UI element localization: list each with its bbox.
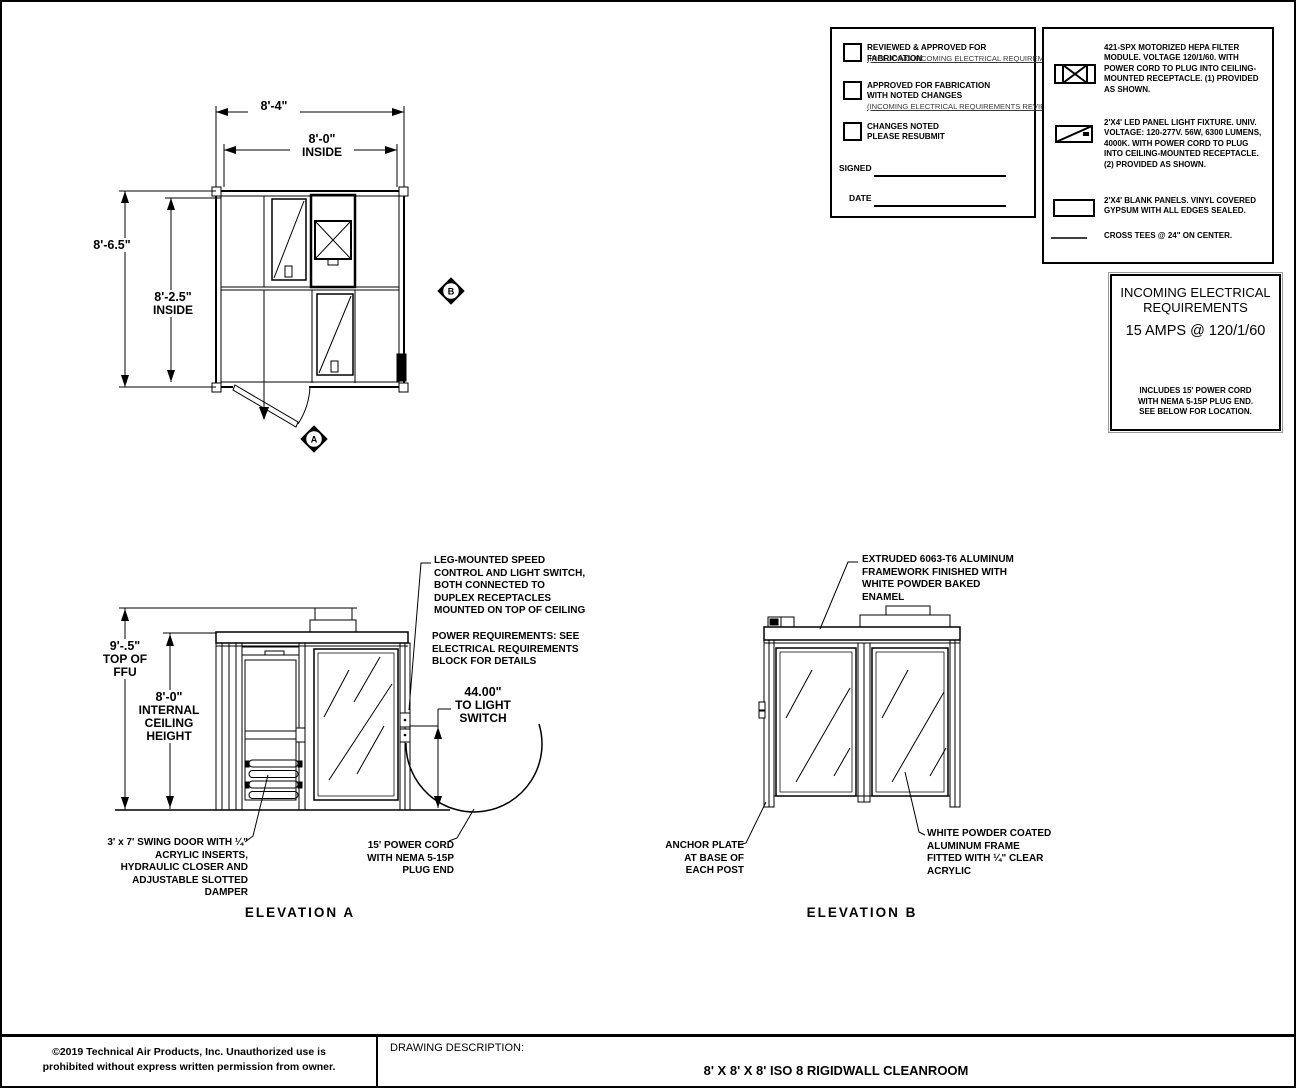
date-label: DATE	[849, 193, 872, 203]
legend-symbol-led-icon	[1055, 125, 1093, 143]
dim-value: 44.00"	[447, 685, 519, 699]
drawing-title: 8' X 8' X 8' ISO 8 RIGIDWALL CLEANROOM	[378, 1063, 1294, 1078]
annotation-power-requirements: POWER REQUIREMENTS: SEE ELECTRICAL REQUI…	[432, 631, 590, 669]
section-marker-a-label: A	[311, 435, 318, 445]
plan-dim-outer-depth	[119, 191, 216, 387]
approval-item-1-note: (INCLUDING INCOMING ELECTRICAL REQUIREME…	[867, 54, 1067, 63]
section-marker-a: A	[301, 426, 327, 452]
approval-item-2-note: (INCOMING ELECTRICAL REQUIREMENTS REVIEW…	[867, 102, 1065, 111]
legend-item-2-text: 2'X4' LED PANEL LIGHT FIXTURE. UNIV. VOL…	[1104, 118, 1264, 170]
plan-dim-inner-depth-text: 8'-2.5" INSIDE	[141, 290, 205, 317]
date-line	[874, 205, 1006, 207]
legend-symbol-hepa-icon	[1054, 64, 1096, 84]
leader-anchor-plate	[738, 802, 766, 845]
approval-item-3-line1: CHANGES NOTED	[867, 122, 1029, 133]
dim-value: 8'-0"	[290, 132, 354, 146]
electrical-requirements-block: INCOMING ELECTRICAL REQUIREMENTS 15 AMPS…	[1110, 274, 1281, 431]
dim-label: INSIDE	[290, 146, 354, 159]
plan-dim-outer-depth-text: 8'-6.5"	[86, 238, 138, 252]
leader-framework	[820, 562, 858, 629]
elevation-a-switch-boxes	[400, 713, 410, 742]
drawing-sheet: B A	[0, 0, 1296, 1088]
plan-led-panel-1	[272, 199, 306, 280]
dim-value: 9'-.5"	[96, 639, 154, 653]
elevation-b-acrylic-panels	[776, 648, 948, 796]
electrical-amps: 15 AMPS @ 120/1/60	[1112, 323, 1279, 339]
plan-hepa-module	[311, 195, 355, 287]
dim-label: INSIDE	[141, 304, 205, 317]
legend-item-3-text: 2'X4' BLANK PANELS. VINYL COVERED GYPSUM…	[1104, 196, 1264, 217]
annotation-acrylic-frame: WHITE POWDER COATED ALUMINUM FRAME FITTE…	[927, 828, 1055, 878]
elevation-b-title: ELEVATION B	[802, 905, 922, 920]
approval-checkbox-3	[843, 122, 862, 141]
signed-label: SIGNED	[839, 163, 872, 173]
leader-acrylic-frame	[905, 772, 925, 835]
dim-label: TOP OF FFU	[96, 653, 154, 679]
plan-led-panel-2	[317, 294, 353, 375]
approval-checkbox-1	[843, 43, 862, 62]
approval-item-2-line1: APPROVED FOR FABRICATION	[867, 81, 1029, 92]
elevation-a-power-cord	[406, 724, 542, 812]
approval-block: REVIEWED & APPROVED FOR FABRICATION (INC…	[830, 27, 1036, 218]
approval-item-2-line2: WITH NOTED CHANGES	[867, 91, 1029, 102]
elevation-a-title: ELEVATION A	[240, 905, 360, 920]
drawing-description-label: DRAWING DESCRIPTION:	[390, 1042, 524, 1054]
copyright-line-1: ©2019 Technical Air Products, Inc. Unaut…	[12, 1045, 366, 1060]
leader-power-cord	[449, 809, 474, 841]
copyright-line-2: prohibited without express written permi…	[12, 1060, 366, 1075]
plan-dim-inner-width-text: 8'-0" INSIDE	[290, 132, 354, 159]
annotation-framework: EXTRUDED 6063-T6 ALUMINUM FRAMEWORK FINI…	[862, 554, 1022, 604]
signed-line	[874, 175, 1006, 177]
leader-leg-mounted	[409, 563, 431, 710]
dim-label: TO LIGHT SWITCH	[447, 699, 519, 725]
title-block: ©2019 Technical Air Products, Inc. Unaut…	[2, 1034, 1296, 1088]
plan-dim-outer-width-text: 8'-4"	[248, 99, 300, 113]
approval-item-3-line2: PLEASE RESUBMIT	[867, 132, 1029, 143]
annotation-anchor-plate: ANCHOR PLATE AT BASE OF EACH POST	[656, 840, 744, 878]
elevation-a-dim-switch-text: 44.00" TO LIGHT SWITCH	[447, 685, 519, 725]
legend-symbol-blank-panel-icon	[1053, 199, 1095, 217]
electrical-title: INCOMING ELECTRICAL REQUIREMENTS	[1112, 285, 1279, 315]
legend-item-4-text: CROSS TEES @ 24" ON CENTER.	[1104, 231, 1264, 241]
elevation-b-view	[738, 562, 960, 845]
elevation-b-junction-box	[768, 617, 794, 627]
plan-power-cord-location	[397, 354, 406, 381]
elevation-a-dim-ffu-text: 9'-.5" TOP OF FFU	[96, 639, 154, 679]
legend-symbol-cross-tee-icon	[1051, 235, 1087, 241]
legend-item-1-text: 421-SPX MOTORIZED HEPA FILTER MODULE. VO…	[1104, 43, 1264, 95]
annotation-power-cord: 15' POWER CORD WITH NEMA 5-15P PLUG END	[358, 840, 454, 878]
dim-value: 8'-0"	[136, 690, 202, 704]
title-block-copyright-cell: ©2019 Technical Air Products, Inc. Unaut…	[2, 1037, 378, 1088]
annotation-leg-mounted: LEG-MOUNTED SPEED CONTROL AND LIGHT SWIT…	[434, 555, 586, 618]
approval-checkbox-2	[843, 81, 862, 100]
legend-block: 421-SPX MOTORIZED HEPA FILTER MODULE. VO…	[1042, 27, 1274, 264]
dim-label: INTERNAL CEILING HEIGHT	[136, 704, 202, 743]
annotation-swing-door: 3' x 7' SWING DOOR WITH ¼" ACRYLIC INSER…	[100, 837, 248, 900]
dim-value: 8'-2.5"	[141, 290, 205, 304]
elevation-a-dim-light-switch	[410, 709, 451, 808]
section-marker-b: B	[438, 278, 464, 304]
elevation-a-door	[245, 660, 305, 800]
electrical-note: INCLUDES 15' POWER CORD WITH NEMA 5-15P …	[1112, 386, 1279, 418]
copyright-text: ©2019 Technical Air Products, Inc. Unaut…	[12, 1045, 366, 1075]
section-marker-b-label: B	[448, 287, 455, 297]
plan-door	[233, 370, 310, 427]
elevation-a-dim-ceiling-text: 8'-0" INTERNAL CEILING HEIGHT	[136, 690, 202, 743]
elevation-a-acrylic-panel	[314, 649, 398, 800]
